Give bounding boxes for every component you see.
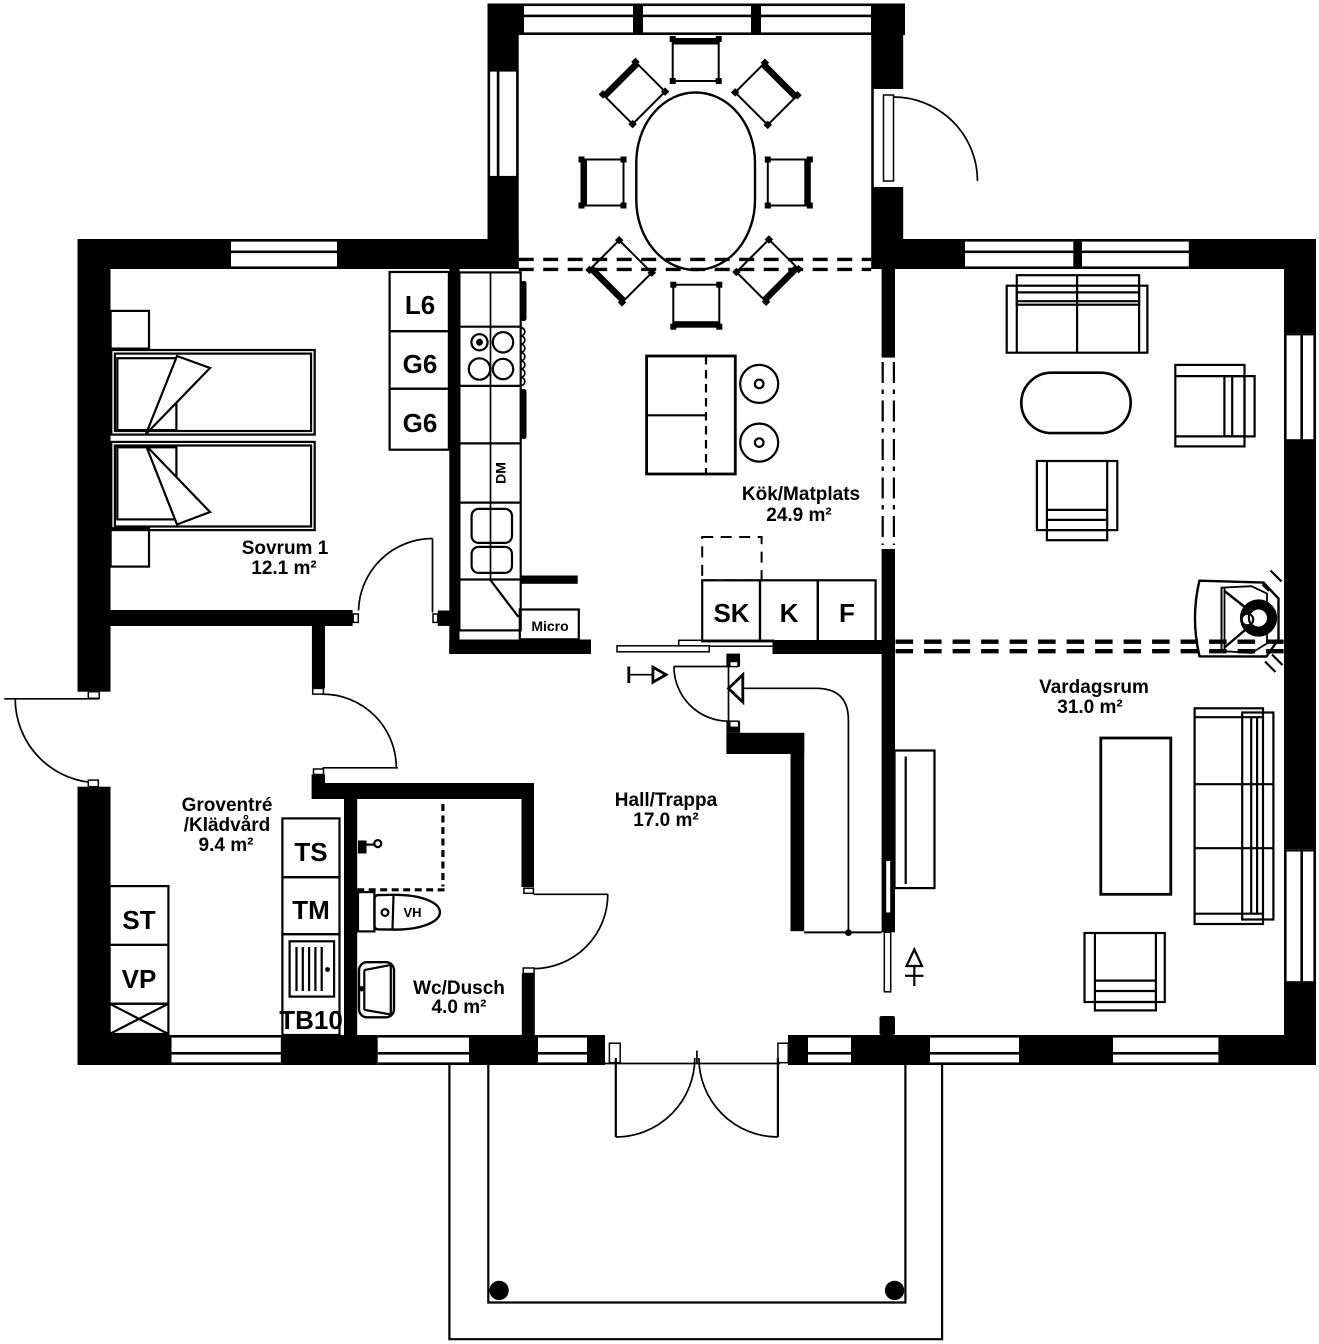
svg-text:TM: TM [292, 895, 330, 925]
svg-text:L6: L6 [405, 290, 435, 320]
svg-text:TB10: TB10 [279, 1005, 343, 1035]
svg-text:VP: VP [122, 964, 157, 994]
svg-text:K: K [780, 598, 799, 628]
svg-text:17.0 m²: 17.0 m² [633, 810, 698, 831]
svg-text:Micro: Micro [531, 618, 568, 634]
svg-text:12.1 m²: 12.1 m² [251, 558, 316, 579]
svg-text:9.4 m²: 9.4 m² [199, 835, 254, 856]
svg-text:Sovrum 1: Sovrum 1 [242, 538, 329, 559]
svg-text:VH: VH [403, 905, 421, 920]
svg-text:Wc/Dusch: Wc/Dusch [413, 978, 505, 999]
svg-text:G6: G6 [403, 349, 438, 379]
svg-text:F: F [839, 598, 855, 628]
svg-text:DM: DM [493, 462, 509, 484]
svg-text:31.0 m²: 31.0 m² [1057, 697, 1122, 718]
svg-text:SK: SK [713, 598, 749, 628]
svg-text:/Klädvård: /Klädvård [184, 815, 271, 836]
svg-text:G6: G6 [403, 408, 438, 438]
svg-text:Hall/Trappa: Hall/Trappa [615, 790, 718, 811]
svg-text:Kök/Matplats: Kök/Matplats [742, 484, 860, 505]
svg-text:TS: TS [294, 837, 327, 867]
svg-text:24.9 m²: 24.9 m² [766, 505, 831, 526]
svg-text:Vardagsrum: Vardagsrum [1039, 677, 1149, 698]
svg-text:Groventré: Groventré [182, 795, 273, 816]
svg-text:ST: ST [122, 905, 155, 935]
svg-text:4.0 m²: 4.0 m² [432, 997, 487, 1018]
